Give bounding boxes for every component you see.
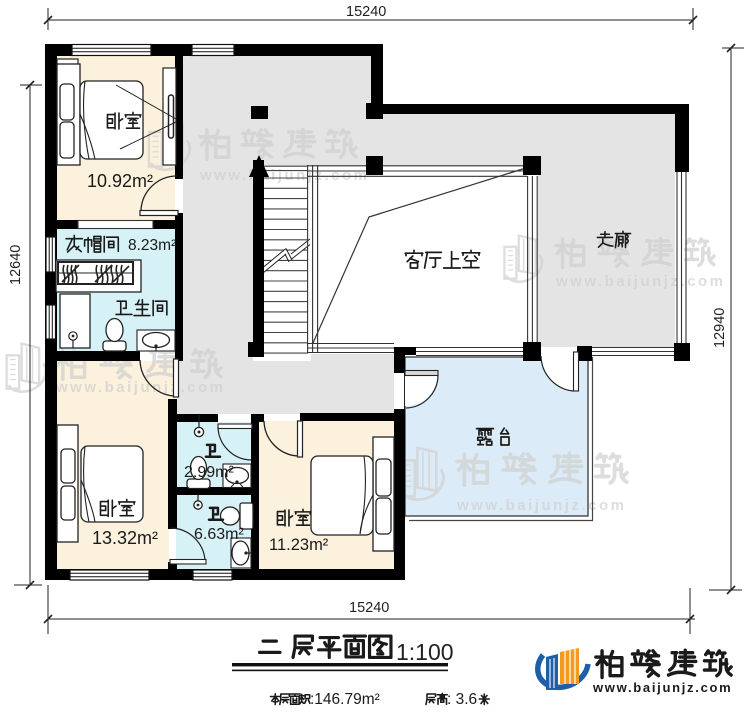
svg-text:13.32m²: 13.32m² <box>92 528 158 548</box>
svg-text:www.baijunjz.com: www.baijunjz.com <box>592 680 732 695</box>
svg-text::146.79m²: :146.79m² <box>310 691 380 708</box>
svg-text:www.baijunjz.com: www.baijunjz.com <box>199 167 369 184</box>
svg-text:www.baijunjz.com: www.baijunjz.com <box>555 273 725 290</box>
svg-text:15240: 15240 <box>349 600 389 616</box>
svg-text:10.92m²: 10.92m² <box>87 171 153 191</box>
svg-text:www.baijunjz.com: www.baijunjz.com <box>456 497 626 514</box>
svg-text:6.63m²: 6.63m² <box>194 526 244 543</box>
svg-text:2.99m²: 2.99m² <box>184 464 234 481</box>
svg-text:www.baijunjz.com: www.baijunjz.com <box>55 379 225 396</box>
svg-text:: 3.6: : 3.6 <box>447 691 477 708</box>
svg-text:15240: 15240 <box>346 4 386 20</box>
svg-text:1:100: 1:100 <box>396 639 454 665</box>
svg-text:8.23m²: 8.23m² <box>128 237 176 254</box>
svg-text:12940: 12940 <box>712 308 728 348</box>
svg-text:12640: 12640 <box>8 245 24 285</box>
svg-text:11.23m²: 11.23m² <box>269 536 329 554</box>
